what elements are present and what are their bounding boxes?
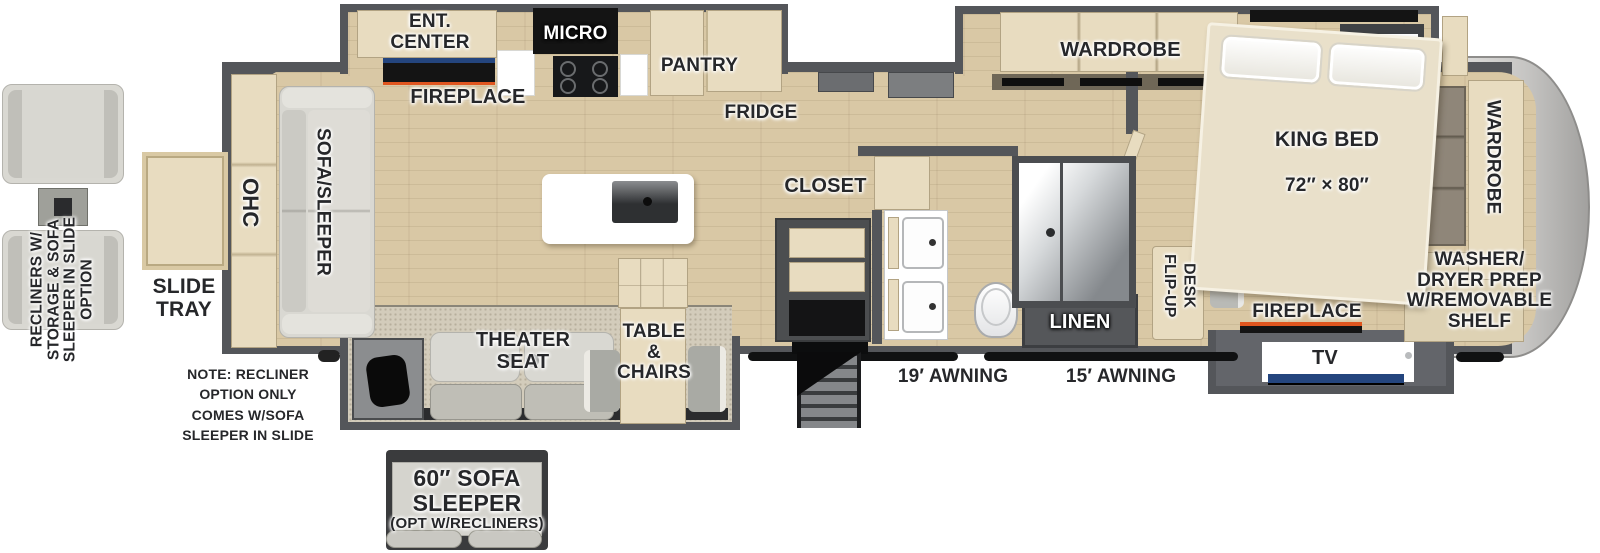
fridge-label: FRIDGE [716,103,806,124]
recliner-option-group: RECLINERS W/ STORAGE & SOFA SLEEPER IN S… [2,84,124,330]
front-wardrobe-label: WARDROBE [1482,100,1503,215]
bath-wall-vertical [872,210,882,344]
theater-seat-left [430,384,522,420]
recliner-note: NOTE: RECLINER OPTION ONLY COMES W/SOFA … [180,364,316,445]
shower-door-handle [1046,228,1055,237]
wardrobe-slide-label: WARDROBE [1048,40,1193,62]
dining-chair-right [688,346,726,412]
bath-wall-top [858,146,1018,156]
bedroom-fireplace-unit [1240,322,1362,333]
stove-burner [592,78,608,94]
front-landing-gear [1456,352,1504,362]
sink-faucet [929,303,936,310]
king-bed-size: 72″ × 80″ [1285,175,1369,196]
dining-hutch [618,258,688,308]
closet-label: CLOSET [778,176,873,198]
awning-19-label: 19′ AWNING [878,367,1028,388]
stove-burner [560,78,576,94]
linen-label: LINEN [1030,312,1130,334]
micro-label: MICRO [533,24,618,45]
slide-tray-label: SLIDE TRAY [134,276,234,321]
slide-tray [142,152,228,270]
upper-cabinet-a [818,72,874,92]
pantry-cabinet [650,10,704,96]
upper-cabinet-b [888,72,954,98]
rv-floorplan: ENT. CENTER FIREPLACE MICRO PANTRY FRIDG… [0,0,1600,553]
headboard-shelf [1250,10,1418,22]
bath-vanity [884,210,948,340]
bedroom-fireplace-label: FIREPLACE [1242,302,1372,323]
bed-pillow [1326,42,1427,93]
king-bed-label: KING BED 72″ × 80″ [1252,106,1402,197]
bath-upper-cabinet [874,156,930,210]
sofa-armrest-bottom [282,314,372,334]
slide-mechanism-nub [318,350,340,362]
slide-end-cabinet-opening [365,353,412,408]
sofa-option-cushion [386,530,462,548]
shower-door-seam [1060,160,1063,304]
hall-closet [775,218,871,342]
ent-center-label: ENT. CENTER [385,12,475,53]
vanity-sink [902,217,944,269]
vanity-door [888,217,899,269]
sofa-sleeper-label: SOFA/SLEEPER [312,128,333,276]
stove-burner [592,61,608,77]
toilet-seat-ring [981,288,1011,326]
tv-label: TV [1290,348,1360,370]
sink-faucet [929,239,936,246]
awning-15-label: 15′ AWNING [1046,367,1196,388]
bed-pillow [1219,34,1324,85]
sofa-back-cushions [282,110,306,312]
sofa-option-sub: (OPT W/RECLINERS) [388,516,546,532]
king-bed-title: KING BED [1275,128,1379,151]
stove-burner [560,61,576,77]
kitchen-counter-right [620,54,648,96]
table-chairs-label: TABLE & CHAIRS [616,322,692,384]
theater-seat-label: THEATER SEAT [433,330,613,373]
recliner-top-arms [8,90,118,178]
vanity-sink [902,281,944,333]
nightstand [1442,16,1468,76]
fridge-cabinet [706,10,782,92]
closet-base [789,300,865,336]
sofa-armrest-top [282,88,372,108]
flip-up-desk-label: FLIP-UP DESK [1160,254,1198,318]
closet-shelf [789,228,865,258]
island-faucet [643,197,652,206]
awning-bar-15 [984,352,1238,361]
hanger-slot [1002,78,1064,86]
ohc-label: OHC [238,178,262,228]
sofa-option-title: 60″ SOFA SLEEPER [392,466,542,516]
closet-shelf [789,262,865,292]
shower [1012,156,1136,308]
sofa-option-cushion [468,530,542,548]
hanger-slot [1080,78,1142,86]
tv-speaker-dot [1405,352,1412,359]
washer-dryer-label: WASHER/ DRYER PREP W/REMOVABLE SHELF [1392,250,1567,332]
kitchen-fireplace-unit [383,58,495,85]
vanity-door [888,279,899,331]
recliner-option-label: RECLINERS W/ STORAGE & SOFA SLEEPER IN S… [30,166,97,412]
tv-shelf [1268,374,1404,385]
kitchen-fireplace-label: FIREPLACE [398,87,538,109]
pantry-label: PANTRY [652,56,747,77]
